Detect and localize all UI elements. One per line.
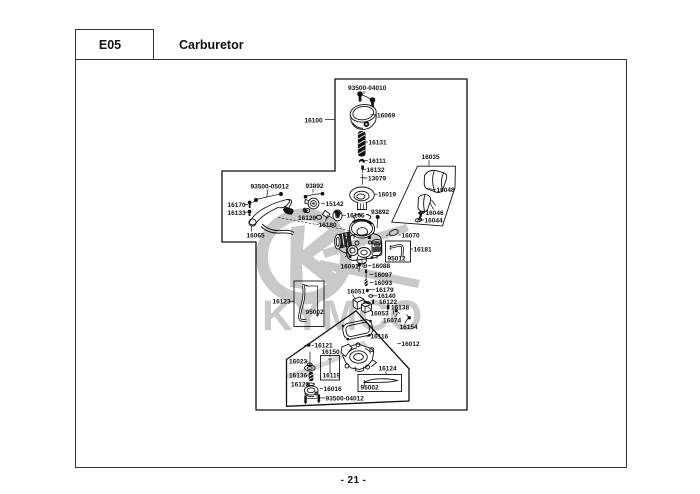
svg-text:16035: 16035 bbox=[422, 154, 440, 161]
svg-text:16069: 16069 bbox=[377, 113, 395, 120]
svg-text:16016: 16016 bbox=[324, 386, 342, 393]
svg-text:16180: 16180 bbox=[319, 222, 337, 229]
svg-text:93892: 93892 bbox=[371, 209, 389, 216]
svg-text:16019: 16019 bbox=[378, 192, 396, 199]
svg-text:16044: 16044 bbox=[425, 217, 443, 224]
svg-text:16097: 16097 bbox=[374, 272, 392, 279]
svg-text:93500-04012: 93500-04012 bbox=[326, 395, 365, 402]
svg-text:16136: 16136 bbox=[289, 373, 307, 380]
svg-text:95002: 95002 bbox=[361, 385, 379, 392]
svg-text:13079: 13079 bbox=[368, 176, 386, 183]
svg-text:93500-04010: 93500-04010 bbox=[348, 85, 387, 92]
svg-text:16124: 16124 bbox=[379, 365, 397, 372]
svg-text:16120: 16120 bbox=[298, 215, 316, 222]
svg-text:16170: 16170 bbox=[228, 202, 246, 209]
svg-text:16165: 16165 bbox=[347, 213, 365, 220]
svg-text:16150: 16150 bbox=[322, 349, 340, 356]
svg-text:16123: 16123 bbox=[273, 299, 291, 306]
svg-text:16116: 16116 bbox=[371, 334, 389, 341]
svg-text:15142: 15142 bbox=[326, 201, 344, 208]
svg-text:16181: 16181 bbox=[414, 247, 432, 254]
svg-text:16091: 16091 bbox=[341, 264, 359, 271]
svg-text:16070: 16070 bbox=[402, 233, 420, 240]
svg-text:16012: 16012 bbox=[402, 341, 420, 348]
svg-text:16048: 16048 bbox=[437, 187, 455, 194]
svg-text:16065: 16065 bbox=[247, 233, 265, 240]
svg-text:16093: 16093 bbox=[374, 280, 392, 287]
svg-text:16046: 16046 bbox=[426, 210, 444, 217]
svg-text:- 21 -: - 21 - bbox=[341, 475, 367, 486]
svg-text:93500-05012: 93500-05012 bbox=[251, 184, 290, 191]
svg-text:16100: 16100 bbox=[305, 118, 323, 125]
svg-text:16154: 16154 bbox=[400, 324, 418, 331]
svg-text:16132: 16132 bbox=[367, 167, 385, 174]
svg-text:16053: 16053 bbox=[371, 311, 389, 318]
svg-text:16023: 16023 bbox=[289, 359, 307, 366]
svg-text:16120: 16120 bbox=[291, 382, 309, 389]
svg-text:16088: 16088 bbox=[372, 263, 390, 270]
svg-text:93892: 93892 bbox=[306, 183, 324, 190]
svg-text:16133: 16133 bbox=[228, 210, 246, 217]
svg-text:Carburetor: Carburetor bbox=[179, 38, 244, 52]
svg-text:16131: 16131 bbox=[369, 140, 387, 147]
svg-text:95012: 95012 bbox=[388, 256, 406, 263]
svg-text:16111: 16111 bbox=[369, 158, 387, 165]
svg-text:16119: 16119 bbox=[323, 373, 341, 380]
svg-text:95002: 95002 bbox=[306, 309, 324, 316]
svg-text:16138: 16138 bbox=[391, 305, 409, 312]
svg-text:E05: E05 bbox=[99, 38, 121, 52]
svg-text:16051: 16051 bbox=[347, 289, 365, 296]
